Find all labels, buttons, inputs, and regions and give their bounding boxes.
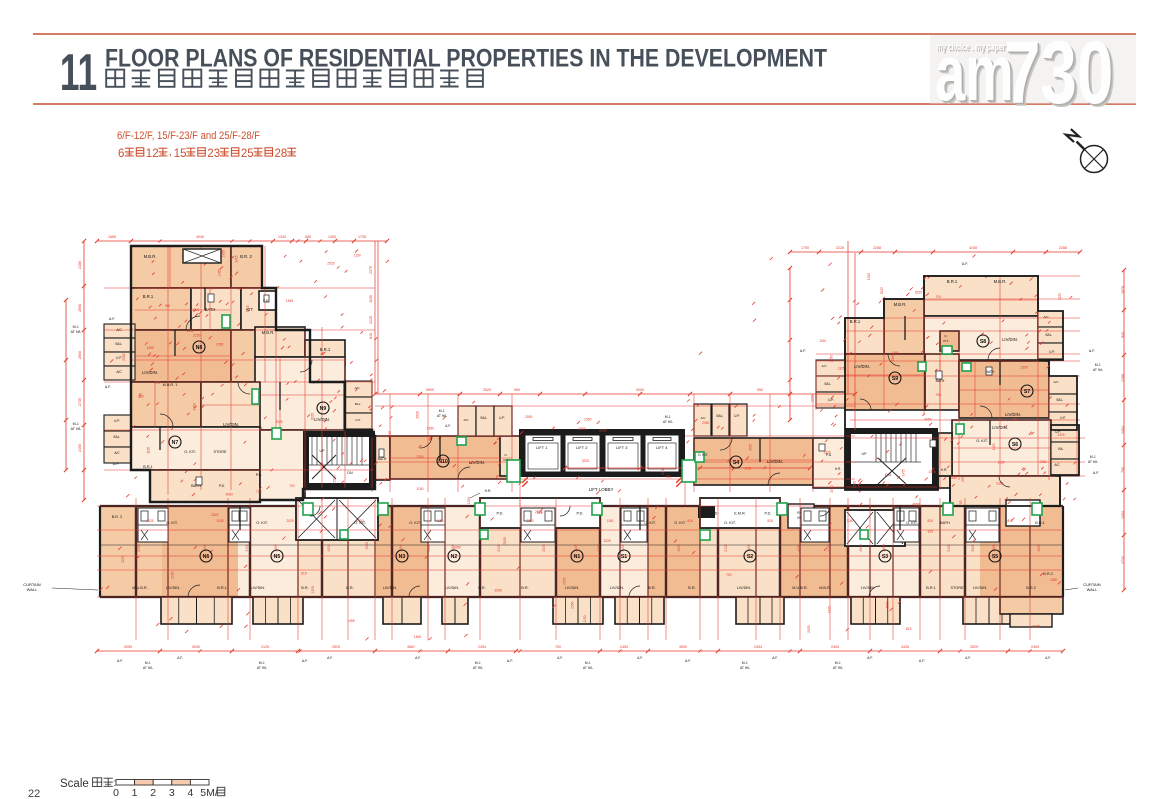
- svg-text:S8: S8: [980, 339, 986, 345]
- svg-text:1678: 1678: [1121, 286, 1125, 294]
- svg-text:4435: 4435: [901, 645, 909, 649]
- svg-text:2735: 2735: [78, 398, 82, 406]
- svg-text:2130: 2130: [724, 544, 728, 552]
- svg-text:3130: 3130: [245, 544, 249, 552]
- svg-text:25: 25: [241, 148, 254, 160]
- svg-text:12: 12: [146, 148, 159, 160]
- svg-text:815: 815: [927, 519, 933, 523]
- svg-text:M.B.R.: M.B.R.: [894, 302, 907, 307]
- svg-text:B.R.1: B.R.1: [850, 319, 861, 324]
- svg-text:U.P.: U.P.: [116, 356, 122, 360]
- svg-text:2150: 2150: [193, 334, 201, 338]
- svg-text:LIV/DIN.: LIV/DIN.: [223, 422, 239, 427]
- svg-text:2025: 2025: [146, 519, 153, 523]
- svg-text:BAL.: BAL.: [1057, 398, 1064, 402]
- svg-text:KIT.: KIT.: [943, 339, 948, 343]
- svg-text:,: ,: [169, 146, 172, 158]
- svg-text:BA.: BA.: [1058, 447, 1063, 451]
- svg-text:2050: 2050: [495, 588, 503, 592]
- svg-text:UP: UP: [862, 452, 868, 456]
- svg-text:730: 730: [1004, 22, 1113, 122]
- svg-text:LIV/DIN.: LIV/DIN.: [469, 460, 485, 465]
- svg-text:A.F.: A.F.: [507, 659, 513, 663]
- svg-text:M.J.: M.J.: [835, 661, 841, 665]
- svg-text:N5: N5: [274, 554, 281, 560]
- svg-text:O. KIT.: O. KIT.: [184, 450, 196, 454]
- svg-text:A.F.: A.F.: [637, 656, 643, 660]
- svg-text:2525: 2525: [327, 262, 335, 266]
- svg-text:LIV/DIN.: LIV/DIN.: [1005, 412, 1021, 417]
- svg-text:BATH: BATH: [378, 457, 387, 461]
- svg-text:AT H/L: AT H/L: [1093, 368, 1103, 372]
- svg-text:DN: DN: [347, 471, 353, 475]
- svg-text:A/C: A/C: [354, 386, 360, 390]
- svg-text:A/C: A/C: [1054, 463, 1060, 467]
- svg-text:AT H/L: AT H/L: [473, 666, 483, 670]
- svg-text:2525: 2525: [333, 475, 337, 482]
- svg-text:2288: 2288: [1059, 246, 1067, 250]
- svg-text:700: 700: [726, 573, 732, 577]
- svg-text:840: 840: [369, 333, 373, 339]
- svg-text:U.P.: U.P.: [1055, 430, 1061, 434]
- svg-text:4040: 4040: [196, 235, 204, 239]
- svg-text:1: 1: [132, 787, 138, 799]
- svg-text:BAL.: BAL.: [825, 382, 832, 386]
- svg-text:B.R.: B.R.: [648, 586, 655, 590]
- svg-text:WALL: WALL: [27, 587, 39, 592]
- svg-text:1150: 1150: [819, 339, 826, 343]
- svg-text:UP: UP: [320, 449, 326, 453]
- svg-text:2130: 2130: [137, 544, 141, 552]
- svg-text:P.D.: P.D.: [497, 512, 504, 516]
- svg-text:LIV/DIN.: LIV/DIN.: [861, 586, 875, 590]
- svg-text:P.D.: P.D.: [577, 512, 584, 516]
- svg-text:B.R.: B.R.: [688, 586, 695, 590]
- svg-text:N2: N2: [451, 554, 458, 560]
- svg-text:5900: 5900: [426, 388, 434, 392]
- svg-text:O.: O.: [944, 334, 947, 338]
- svg-text:1150: 1150: [998, 461, 1005, 465]
- svg-text:815: 815: [906, 627, 912, 631]
- svg-text:3225: 3225: [1032, 624, 1040, 628]
- svg-text:M.J.: M.J.: [475, 661, 481, 665]
- svg-text:1150: 1150: [437, 519, 444, 523]
- svg-text:5M/: 5M/: [200, 787, 218, 799]
- svg-text:LIFT 2: LIFT 2: [576, 445, 588, 450]
- svg-text:4330: 4330: [1037, 544, 1041, 552]
- svg-text:A.F.: A.F.: [117, 659, 123, 663]
- svg-text:S9: S9: [892, 376, 898, 382]
- svg-text:O. KIT.: O. KIT.: [409, 521, 421, 525]
- svg-text:STORE: STORE: [213, 450, 226, 454]
- svg-text:STORE: STORE: [950, 586, 963, 590]
- svg-text:700: 700: [666, 475, 672, 479]
- svg-text:LIV/DIN.: LIV/DIN.: [383, 586, 397, 590]
- svg-text:1455: 1455: [388, 431, 392, 438]
- svg-text:700: 700: [935, 393, 941, 397]
- svg-text:KIT.: KIT.: [246, 307, 253, 312]
- svg-text:2350: 2350: [170, 571, 174, 579]
- svg-text:B.R.1: B.R.1: [947, 279, 958, 284]
- svg-text:A.F.: A.F.: [800, 349, 806, 353]
- svg-text:1325: 1325: [827, 606, 831, 614]
- svg-text:N1: N1: [574, 554, 581, 560]
- svg-text:LIFT 3: LIFT 3: [616, 445, 628, 450]
- svg-text:700: 700: [256, 490, 262, 494]
- svg-text:M.J.: M.J.: [73, 325, 80, 329]
- svg-text:22: 22: [28, 788, 40, 799]
- svg-text:AT H/L: AT H/L: [740, 666, 750, 670]
- svg-text:N6: N6: [203, 554, 210, 560]
- svg-text:BAL.: BAL.: [114, 435, 121, 439]
- svg-text:N3: N3: [399, 554, 406, 560]
- svg-text:A.F.: A.F.: [327, 656, 333, 660]
- svg-text:A.F.: A.F.: [1093, 471, 1099, 475]
- svg-text:2050: 2050: [579, 427, 586, 431]
- svg-text:2025: 2025: [216, 519, 223, 523]
- svg-text:2529: 2529: [970, 645, 978, 649]
- svg-text:23: 23: [207, 148, 220, 160]
- svg-text:AT H/L: AT H/L: [143, 666, 153, 670]
- svg-text:O. KIT.: O. KIT.: [644, 521, 656, 525]
- svg-text:A.F.: A.F.: [415, 656, 421, 660]
- svg-text:4060: 4060: [912, 503, 920, 507]
- svg-text:2: 2: [150, 787, 156, 799]
- svg-text:2150: 2150: [599, 428, 607, 432]
- svg-text:2130: 2130: [947, 544, 951, 552]
- svg-text:M.J.: M.J.: [73, 422, 80, 426]
- svg-text:2350: 2350: [416, 455, 423, 459]
- svg-text:A.F.: A.F.: [962, 262, 968, 266]
- svg-text:3225: 3225: [582, 459, 589, 463]
- svg-text:2525: 2525: [275, 420, 282, 424]
- svg-text:815: 815: [155, 380, 161, 384]
- svg-text:AT H/L: AT H/L: [71, 427, 82, 431]
- svg-text:2350: 2350: [192, 403, 196, 411]
- svg-text:4330: 4330: [859, 544, 863, 552]
- svg-text:4060: 4060: [226, 492, 234, 496]
- svg-text:4350: 4350: [797, 544, 801, 552]
- svg-text:P.D.: P.D.: [219, 484, 225, 488]
- svg-text:2350: 2350: [1040, 460, 1048, 464]
- svg-text:B.R.2: B.R.2: [1026, 586, 1036, 590]
- svg-text:3225: 3225: [1058, 293, 1062, 300]
- svg-text:AT H/L: AT H/L: [1088, 460, 1098, 464]
- svg-text:1455: 1455: [234, 255, 238, 262]
- svg-text:P.D.: P.D.: [263, 299, 269, 303]
- svg-text:BAL.: BAL.: [717, 414, 724, 418]
- svg-text:WALL: WALL: [1087, 587, 1099, 592]
- svg-text:4350: 4350: [427, 544, 431, 552]
- svg-text:2350: 2350: [187, 329, 194, 333]
- svg-text:S4: S4: [733, 460, 739, 466]
- svg-text:2350: 2350: [526, 519, 533, 523]
- svg-text:1325: 1325: [852, 481, 856, 489]
- svg-text:4330: 4330: [327, 544, 331, 552]
- svg-text:1735: 1735: [358, 235, 366, 239]
- svg-text:2050: 2050: [454, 546, 462, 550]
- svg-text:B.R.1: B.R.1: [926, 586, 936, 590]
- svg-text:BAL.: BAL.: [1046, 333, 1053, 337]
- svg-text:940: 940: [1121, 332, 1125, 338]
- svg-text:B.R.1: B.R.1: [320, 347, 331, 352]
- svg-text:LIV/DIN.: LIV/DIN.: [1002, 337, 1018, 342]
- svg-text:1150: 1150: [354, 254, 361, 258]
- svg-text:LIFT LOBBY: LIFT LOBBY: [589, 487, 614, 492]
- svg-text:700: 700: [555, 645, 561, 649]
- svg-text:LIV/DIN.: LIV/DIN.: [445, 586, 459, 590]
- svg-text:M.J.: M.J.: [742, 661, 748, 665]
- svg-text:BAL.: BAL.: [355, 402, 362, 406]
- svg-text:650: 650: [305, 235, 311, 239]
- svg-text:A/C: A/C: [1053, 380, 1059, 384]
- svg-text:2525: 2525: [416, 411, 420, 419]
- svg-text:BATH: BATH: [191, 484, 201, 488]
- svg-text:28: 28: [275, 148, 288, 160]
- svg-text:815: 815: [687, 519, 693, 523]
- svg-text:AT H/L: AT H/L: [257, 666, 267, 670]
- svg-text:4: 4: [187, 787, 193, 799]
- svg-text:2350: 2350: [830, 485, 834, 492]
- svg-text:A.F.: A.F.: [557, 656, 563, 660]
- svg-text:6/F-12/F, 15/F-23/F and 25/F-2: 6/F-12/F, 15/F-23/F and 25/F-28/F: [117, 130, 260, 142]
- svg-text:BATH: BATH: [205, 307, 216, 312]
- svg-text:A/C: A/C: [700, 416, 706, 420]
- svg-text:2150: 2150: [950, 476, 957, 480]
- svg-text:2732: 2732: [1121, 556, 1125, 564]
- svg-text:A.F.: A.F.: [302, 659, 308, 663]
- svg-text:M.B.R.: M.B.R.: [144, 254, 157, 259]
- svg-text:A.F.: A.F.: [685, 659, 691, 663]
- svg-text:2130: 2130: [497, 544, 501, 552]
- svg-text:A/C: A/C: [1043, 315, 1049, 319]
- svg-text:9200: 9200: [636, 388, 644, 392]
- svg-text:2130: 2130: [827, 544, 831, 552]
- svg-text:M.J.: M.J.: [1095, 363, 1101, 367]
- svg-text:M.U.B.R.: M.U.B.R.: [132, 586, 147, 590]
- svg-text:3130: 3130: [597, 544, 601, 552]
- svg-text:BAL.: BAL.: [481, 416, 488, 420]
- svg-text:2350: 2350: [427, 427, 435, 431]
- svg-text:2268: 2268: [873, 246, 881, 250]
- svg-text:2525: 2525: [807, 625, 811, 633]
- svg-text:A.F.: A.F.: [1089, 349, 1095, 353]
- svg-text:M.J.: M.J.: [439, 409, 445, 413]
- svg-text:M.U.B.R.: M.U.B.R.: [792, 586, 807, 590]
- svg-text:LIV/DIN.: LIV/DIN.: [767, 459, 783, 464]
- svg-text:O. KIT.: O. KIT.: [724, 521, 736, 525]
- svg-text:1100: 1100: [369, 295, 373, 303]
- svg-text:2225: 2225: [836, 246, 844, 250]
- svg-text:B.R. 2: B.R. 2: [112, 515, 123, 519]
- svg-text:U.P.: U.P.: [828, 398, 834, 402]
- svg-text:B.R.1: B.R.1: [217, 586, 227, 590]
- svg-text:815: 815: [301, 571, 307, 575]
- svg-text:LIV/DIN.: LIV/DIN.: [610, 586, 624, 590]
- svg-text:1150: 1150: [583, 615, 587, 622]
- svg-text:1455: 1455: [221, 250, 225, 257]
- svg-text:1325: 1325: [837, 367, 844, 371]
- svg-text:S5: S5: [992, 554, 998, 560]
- svg-text:2050: 2050: [503, 537, 507, 545]
- svg-text:950: 950: [1013, 418, 1019, 422]
- svg-text:U.P.: U.P.: [1060, 416, 1066, 420]
- svg-text:1150: 1150: [416, 487, 423, 491]
- svg-text:M.B.R.: M.B.R.: [994, 279, 1007, 284]
- svg-text:AT H/L: AT H/L: [663, 420, 673, 424]
- svg-text:2454: 2454: [620, 645, 628, 649]
- svg-text:2025: 2025: [286, 519, 293, 523]
- svg-text:H.R.: H.R.: [941, 468, 947, 472]
- svg-text:B.R.: B.R.: [301, 586, 308, 590]
- svg-text:LIFT 1: LIFT 1: [536, 445, 548, 450]
- svg-text:2350: 2350: [584, 418, 592, 422]
- svg-text:B.R. 2: B.R. 2: [240, 254, 252, 259]
- svg-text:1150: 1150: [847, 519, 854, 523]
- svg-text:3225: 3225: [121, 555, 125, 563]
- svg-text:LIV/DIN.: LIV/DIN.: [251, 586, 265, 590]
- svg-text:LIV/DIN.: LIV/DIN.: [973, 586, 987, 590]
- svg-text:6: 6: [118, 148, 124, 160]
- svg-text:2529: 2529: [483, 388, 491, 392]
- svg-text:4208: 4208: [969, 246, 977, 250]
- svg-text:11: 11: [60, 44, 97, 101]
- svg-text:H.R.: H.R.: [835, 467, 841, 471]
- svg-text:2050: 2050: [924, 418, 932, 422]
- svg-text:U.P.: U.P.: [355, 418, 361, 422]
- svg-text:700: 700: [936, 295, 942, 299]
- svg-text:2050: 2050: [216, 342, 224, 346]
- svg-text:2050: 2050: [525, 415, 533, 419]
- svg-text:A/C: A/C: [114, 451, 120, 455]
- svg-text:2454: 2454: [754, 645, 762, 649]
- svg-text:2350: 2350: [1050, 578, 1058, 582]
- svg-text:2525: 2525: [748, 443, 752, 450]
- svg-text:A/C: A/C: [463, 418, 469, 422]
- svg-text:2454: 2454: [831, 645, 839, 649]
- svg-text:15: 15: [174, 148, 187, 160]
- svg-text:Scale: Scale: [60, 778, 89, 790]
- svg-text:O.: O.: [504, 453, 507, 457]
- svg-text:1455: 1455: [147, 346, 154, 350]
- svg-text:700: 700: [289, 484, 295, 488]
- svg-text:M.J.: M.J.: [145, 661, 151, 665]
- svg-text:LIV/DIN.: LIV/DIN.: [142, 370, 158, 375]
- svg-text:A.F.: A.F.: [965, 656, 971, 660]
- svg-text:815: 815: [767, 519, 773, 523]
- svg-text:1225: 1225: [369, 316, 373, 324]
- svg-text:P.D.: P.D.: [826, 453, 833, 457]
- svg-text:P.D.: P.D.: [765, 512, 772, 516]
- svg-text:2350: 2350: [1021, 366, 1029, 370]
- svg-text:S1: S1: [621, 554, 627, 560]
- svg-text:P.D.: P.D.: [256, 473, 263, 477]
- svg-text:950: 950: [514, 388, 520, 392]
- svg-text:O. KIT.: O. KIT.: [906, 521, 918, 525]
- svg-text:B.R.: B.R.: [521, 586, 528, 590]
- svg-text:700: 700: [237, 287, 243, 291]
- svg-text:LIV/DIN.: LIV/DIN.: [565, 586, 579, 590]
- svg-text:2268: 2268: [1121, 374, 1125, 382]
- svg-text:1340: 1340: [278, 235, 286, 239]
- svg-text:M.B.R. 1: M.B.R. 1: [163, 383, 178, 387]
- svg-text:1150: 1150: [992, 443, 996, 450]
- svg-text:3225: 3225: [603, 539, 611, 543]
- svg-text:1455: 1455: [217, 269, 221, 277]
- svg-text:950: 950: [757, 388, 763, 392]
- svg-text:1665: 1665: [108, 235, 116, 239]
- svg-text:1455: 1455: [347, 619, 355, 623]
- svg-text:950: 950: [165, 304, 171, 308]
- svg-text:3090: 3090: [192, 645, 200, 649]
- svg-text:LIV/DIN.: LIV/DIN.: [854, 364, 870, 369]
- svg-text:B.R.1: B.R.1: [143, 294, 154, 299]
- svg-text:A.F.: A.F.: [919, 659, 925, 663]
- svg-text:4060: 4060: [891, 354, 895, 362]
- svg-text:B.R.1: B.R.1: [143, 465, 153, 469]
- svg-text:H.R.: H.R.: [485, 489, 492, 493]
- svg-text:LIV/DIN.: LIV/DIN.: [314, 417, 330, 422]
- svg-text:2050: 2050: [122, 353, 126, 361]
- svg-text:am: am: [935, 29, 1014, 118]
- svg-text:B.R.2: B.R.2: [1043, 572, 1053, 576]
- svg-text:A/C: A/C: [116, 370, 122, 374]
- svg-text:KIT.: KIT.: [503, 458, 508, 462]
- svg-text:A/C: A/C: [116, 328, 122, 332]
- svg-text:U.P.: U.P.: [114, 419, 120, 423]
- svg-text:1150: 1150: [147, 447, 151, 454]
- svg-text:1150: 1150: [744, 466, 751, 470]
- svg-text:1400: 1400: [328, 235, 336, 239]
- svg-text:M.J.: M.J.: [259, 661, 265, 665]
- svg-text:B.R.1: B.R.1: [1035, 521, 1045, 525]
- svg-text:A.F.: A.F.: [772, 656, 778, 660]
- svg-text:O. KIT.: O. KIT.: [354, 521, 366, 525]
- svg-text:2690: 2690: [78, 304, 82, 312]
- svg-text:BATH: BATH: [936, 379, 945, 383]
- svg-text:S6: S6: [1012, 442, 1018, 448]
- svg-text:2529: 2529: [332, 645, 340, 649]
- svg-text:2180: 2180: [78, 261, 82, 269]
- svg-text:M.B.R.: M.B.R.: [819, 586, 831, 590]
- svg-text:2125: 2125: [261, 645, 269, 649]
- svg-text:A.F.: A.F.: [105, 385, 111, 389]
- svg-text:2350: 2350: [702, 421, 709, 425]
- svg-text:E.M.R.: E.M.R.: [734, 512, 746, 516]
- svg-text:A.F.: A.F.: [445, 424, 451, 428]
- svg-text:2454: 2454: [1121, 426, 1125, 434]
- svg-text:A.F.: A.F.: [109, 317, 115, 321]
- svg-text:2375: 2375: [369, 266, 373, 274]
- svg-text:O. KIT.: O. KIT.: [976, 439, 988, 443]
- svg-text:1455: 1455: [901, 469, 905, 476]
- svg-text:1325: 1325: [867, 273, 871, 280]
- svg-text:750: 750: [1121, 467, 1125, 473]
- svg-text:2050: 2050: [365, 542, 369, 550]
- svg-text:2525: 2525: [880, 287, 884, 294]
- svg-text:3: 3: [169, 787, 175, 799]
- svg-text:A.F.: A.F.: [113, 462, 119, 466]
- svg-text:LIV/DIN.: LIV/DIN.: [737, 586, 751, 590]
- svg-text:N8: N8: [196, 345, 203, 351]
- svg-text:1455: 1455: [286, 299, 294, 303]
- svg-text:2050: 2050: [830, 355, 834, 362]
- svg-text:2525: 2525: [211, 513, 219, 517]
- svg-text:4230: 4230: [677, 544, 681, 552]
- svg-text:M.J.: M.J.: [665, 415, 671, 419]
- svg-text:2450: 2450: [78, 444, 82, 452]
- svg-text:BAL.: BAL.: [116, 342, 123, 346]
